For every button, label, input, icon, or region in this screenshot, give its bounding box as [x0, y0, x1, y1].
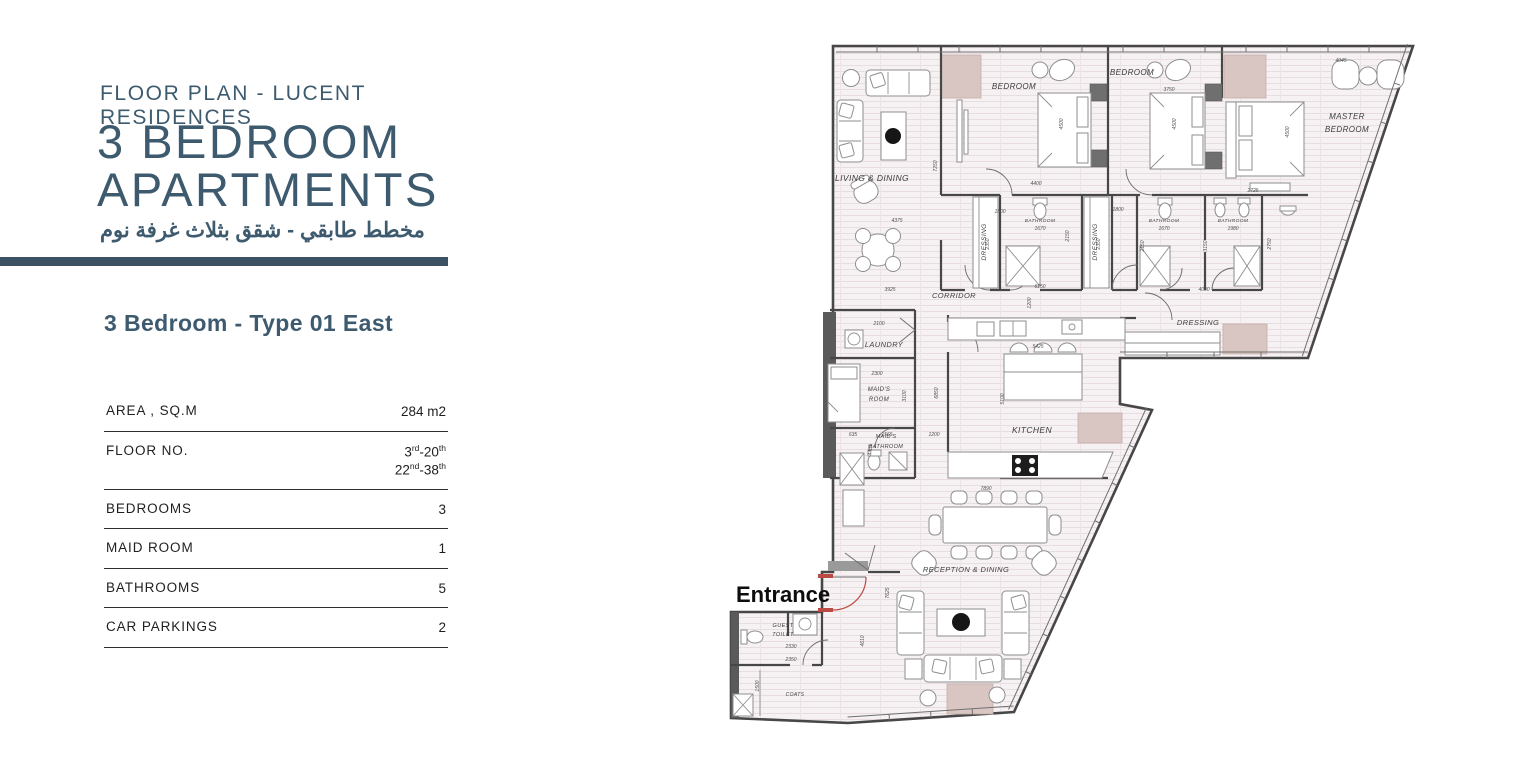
- dimension-label: 4500: [1172, 118, 1178, 129]
- dimension-label: 7625: [885, 587, 891, 598]
- room-label: KITCHEN: [1012, 425, 1053, 435]
- dimension-label: 7890: [980, 486, 991, 492]
- dimension-label: 3100: [902, 390, 908, 401]
- room-label: RECEPTION & DINING: [923, 565, 1009, 574]
- dimension-label: 2350: [1096, 238, 1102, 250]
- room-label: DRESSING: [1177, 318, 1219, 327]
- dimension-label: 1670: [1158, 226, 1169, 232]
- dimension-label: 3750: [1163, 87, 1174, 93]
- dimension-label: 2350: [784, 657, 796, 663]
- dimension-label: 2100: [872, 321, 884, 327]
- room-label: TOILET: [772, 632, 794, 638]
- dimension-label: 5425: [1032, 344, 1043, 350]
- room-label: BEDROOM: [992, 82, 1036, 91]
- room-label: BATHROOM: [1218, 218, 1249, 224]
- room-label: CORRIDOR: [932, 291, 976, 300]
- dimension-label: 2750: [1267, 238, 1273, 250]
- dimension-label: 2330: [784, 644, 796, 650]
- dimension-label: 6850: [934, 387, 940, 398]
- dimension-label: 1800: [1112, 207, 1123, 213]
- room-label: GUEST: [773, 623, 794, 629]
- dimension-label: 1800: [994, 209, 1005, 215]
- room-label: BEDROOM: [1325, 125, 1369, 134]
- room-label: LAUNDRY: [865, 340, 904, 349]
- dimension-label: 2350: [985, 238, 991, 250]
- dimension-label: 5100: [1000, 393, 1006, 404]
- dimension-label: 3150: [1203, 240, 1209, 251]
- dimension-label: 6150: [1034, 284, 1045, 290]
- room-label: COATS: [786, 692, 805, 698]
- dimension-label: 1670: [1034, 226, 1045, 232]
- dimension-label: 1980: [1227, 226, 1238, 232]
- floor-plan-svg: LIVING & DININGBEDROOMBEDROOMMASTERBEDRO…: [0, 0, 1536, 780]
- dimension-label: 4000: [1198, 287, 1209, 293]
- dimension-label: 1565: [881, 432, 892, 438]
- room-label: BATHROOM: [1149, 218, 1180, 224]
- room-label: MAID'S: [868, 387, 891, 393]
- room-label: LIVING & DINING: [835, 173, 909, 183]
- dimension-label: 635: [849, 432, 858, 438]
- room-label: BEDROOM: [1110, 68, 1154, 77]
- dimension-label: 2725: [1246, 188, 1258, 194]
- dimension-label: 4045: [1335, 58, 1346, 64]
- room-label: ROOM: [869, 397, 889, 403]
- dimension-label: 1200: [1027, 297, 1033, 308]
- dimension-label: 4400: [1030, 181, 1041, 187]
- dimension-label: 2150: [1140, 240, 1146, 252]
- floor-plan-page: FLOOR PLAN - LUCENT RESIDENCES 3 BEDROOM…: [0, 0, 1536, 780]
- dimension-label: 1500: [755, 680, 761, 691]
- room-label: MASTER: [1329, 112, 1365, 121]
- dimension-label: 4375: [891, 218, 902, 224]
- dimension-label: 4610: [860, 635, 866, 646]
- room-label: BATHROOM: [1025, 218, 1056, 224]
- dimension-label: 1200: [928, 432, 939, 438]
- dimension-label: 7250: [933, 160, 939, 171]
- dimension-label: 4500: [1059, 118, 1065, 129]
- dimension-label: 2150: [1065, 230, 1071, 242]
- dimension-label: 2300: [870, 371, 882, 377]
- dimension-label: 4485: [868, 444, 874, 455]
- dimension-label: 4500: [1285, 126, 1291, 137]
- entrance-label: Entrance: [736, 582, 830, 607]
- dimension-label: 3925: [884, 287, 895, 293]
